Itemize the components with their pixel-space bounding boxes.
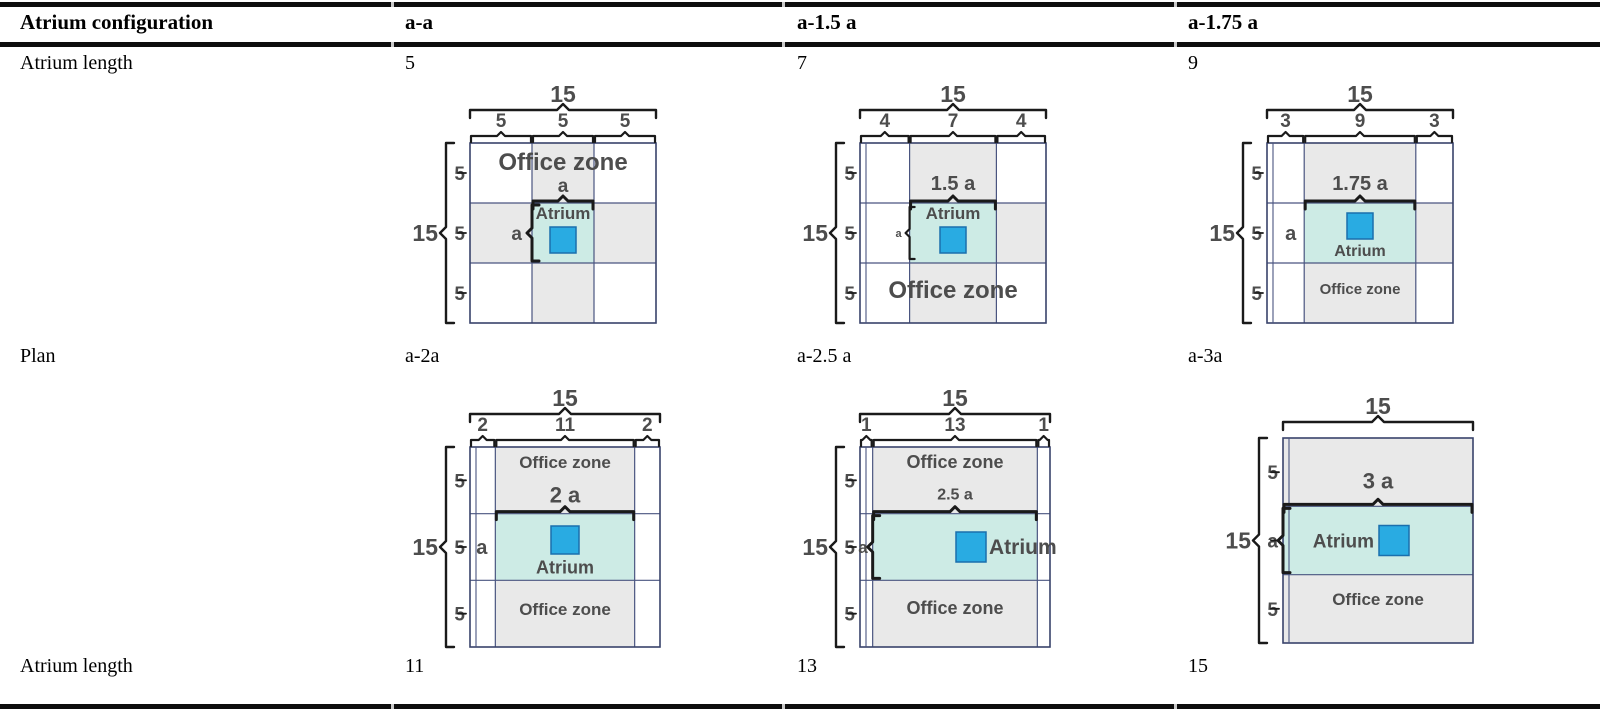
column-divider [782,704,785,709]
svg-text:Office zone: Office zone [888,277,1017,304]
svg-text:15: 15 [550,81,576,107]
svg-text:5: 5 [454,605,465,626]
svg-text:5: 5 [1251,224,1262,245]
svg-text:3 a: 3 a [1363,468,1394,493]
svg-text:5: 5 [844,164,855,185]
svg-text:5: 5 [1251,164,1262,185]
svg-text:5: 5 [454,471,465,492]
svg-text:Atrium: Atrium [926,204,981,223]
svg-text:15: 15 [1209,220,1235,246]
svg-text:5: 5 [496,111,507,132]
svg-text:5: 5 [844,538,855,559]
plan-config-value: a-2.5 a [797,345,851,367]
svg-text:5: 5 [844,284,855,305]
svg-text:1.75 a: 1.75 a [1332,173,1388,195]
svg-text:a: a [895,228,902,240]
column-divider [391,42,394,47]
svg-text:a: a [476,537,488,559]
svg-text:Atrium: Atrium [536,204,591,223]
plan-diagram-a-1-75a: 15393155551.75 aaOffice zoneAtrium [1195,80,1535,338]
svg-text:Atrium: Atrium [1334,243,1386,260]
column-divider [1174,42,1177,47]
svg-text:1.5 a: 1.5 a [931,173,976,195]
svg-text:Office zone: Office zone [519,453,611,472]
svg-text:2: 2 [642,415,653,436]
svg-text:1: 1 [1038,415,1049,436]
svg-text:5: 5 [1267,463,1278,484]
svg-text:15: 15 [412,220,438,246]
svg-text:Atrium: Atrium [536,557,594,577]
svg-text:15: 15 [412,534,438,560]
atrium-length-value: 9 [1188,52,1198,74]
svg-text:Atrium: Atrium [989,536,1057,559]
svg-text:3: 3 [1280,111,1291,132]
column-divider [1174,2,1177,7]
svg-text:a: a [558,176,569,197]
svg-text:Office zone: Office zone [1332,590,1424,609]
svg-text:4: 4 [1016,111,1027,132]
svg-text:a: a [1285,223,1297,245]
svg-text:5: 5 [1251,284,1262,305]
svg-text:2.5 a: 2.5 a [937,487,973,504]
svg-text:4: 4 [880,111,891,132]
plan-diagram-a-a: 1555515555aaOffice zoneAtrium [398,80,738,338]
svg-text:9: 9 [1355,111,1366,132]
atrium-length-value: 5 [405,52,415,74]
svg-text:a: a [858,538,868,557]
header-config-a-a: a-a [405,11,433,34]
column-divider [782,42,785,47]
svg-text:7: 7 [948,111,959,132]
row-label-atrium-length-bottom: Atrium length [20,655,133,677]
svg-text:5: 5 [620,111,631,132]
column-divider [782,2,785,7]
svg-text:Office zone: Office zone [906,598,1003,618]
plan-diagram-a-2a: 152112155552 aaOffice zoneOffice zoneAtr… [398,372,738,664]
atrium-configuration-table: Atrium configuration a-a a-1.5 a a-1.75 … [0,0,1600,722]
svg-text:a: a [511,224,522,245]
svg-text:2: 2 [477,415,488,436]
column-divider [391,2,394,7]
svg-text:15: 15 [1225,528,1251,554]
table-top-rule [0,2,1600,7]
svg-text:15: 15 [802,534,828,560]
plan-diagram-a-3a: 15155a53 aOffice zoneAtrium [1205,372,1545,664]
svg-text:5: 5 [454,224,465,245]
svg-text:Office zone: Office zone [498,149,627,176]
svg-text:15: 15 [1365,393,1391,419]
row-label-atrium-length-top: Atrium length [20,52,133,74]
svg-text:a: a [1267,532,1278,553]
svg-text:Office zone: Office zone [519,600,611,619]
svg-text:5: 5 [454,538,465,559]
svg-text:1: 1 [861,415,872,436]
column-divider [1174,704,1177,709]
plan-diagram-a-1-5a: 15474155551.5 aaOffice zoneAtrium [788,80,1128,338]
plan-config-value: a-2a [405,345,439,367]
svg-text:15: 15 [552,385,578,411]
svg-text:5: 5 [454,284,465,305]
svg-text:5: 5 [558,111,569,132]
header-atrium-configuration: Atrium configuration [20,11,213,34]
header-config-a-1-75a: a-1.75 a [1188,11,1258,34]
svg-text:5: 5 [454,164,465,185]
svg-text:11: 11 [555,415,576,436]
atrium-length-value: 7 [797,52,807,74]
svg-text:Atrium: Atrium [1313,532,1374,553]
column-divider [391,704,394,709]
svg-text:5: 5 [1267,600,1278,621]
svg-text:2 a: 2 a [550,483,581,508]
svg-text:5: 5 [844,224,855,245]
svg-text:15: 15 [940,81,966,107]
svg-text:Office zone: Office zone [1320,281,1401,298]
svg-text:5: 5 [844,605,855,626]
plan-config-value: a-3a [1188,345,1222,367]
table-header-rule [0,42,1600,47]
svg-text:15: 15 [942,385,968,411]
plan-diagram-a-2-5a: 151131155552.5 aaOffice zoneOffice zoneA… [788,372,1128,664]
svg-text:15: 15 [802,220,828,246]
svg-text:13: 13 [944,415,965,436]
header-config-a-1-5a: a-1.5 a [797,11,857,34]
table-bottom-rule [0,704,1600,709]
row-label-plan: Plan [20,345,56,367]
svg-text:3: 3 [1429,111,1440,132]
svg-text:15: 15 [1347,81,1373,107]
svg-text:Office zone: Office zone [906,452,1003,472]
svg-text:5: 5 [844,471,855,492]
